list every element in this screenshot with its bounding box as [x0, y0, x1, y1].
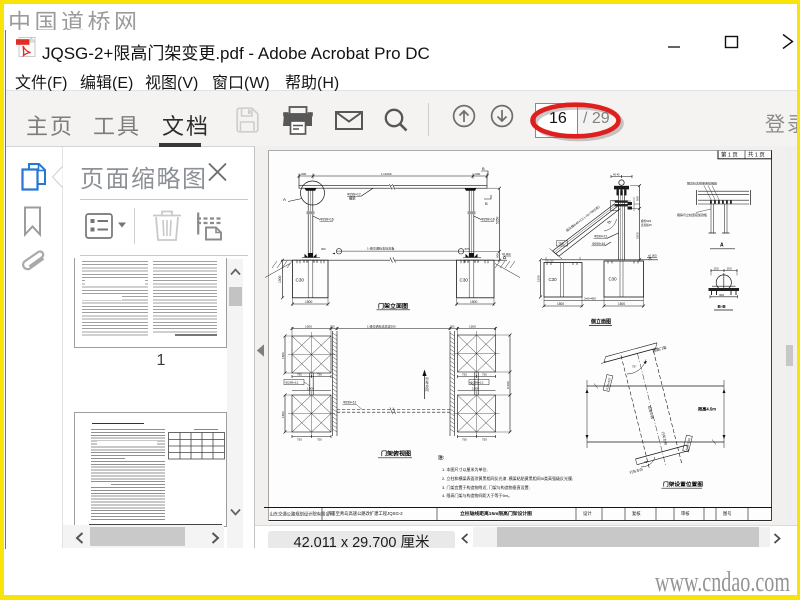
svg-text:300: 300	[719, 293, 724, 297]
svg-text:济南至青岛高速公路改扩建工程JQSG-2: 济南至青岛高速公路改扩建工程JQSG-2	[327, 510, 403, 517]
svg-text:www.cndao.com: www.cndao.com	[655, 566, 790, 598]
svg-text:750: 750	[558, 242, 564, 246]
svg-text:限高标志横梁连接抱箍: 限高标志横梁连接抱箍	[687, 181, 717, 186]
svg-text:1. 本图尺寸以厘米为单位;: 1. 本图尺寸以厘米为单位;	[442, 466, 488, 472]
svg-text:1500: 1500	[278, 275, 282, 283]
svg-text:2. 立柱和横梁表面涂黄黑相间反光漆, 横梁粘贴黄黑相间II: 2. 立柱和横梁表面涂黄黑相间反光漆, 横梁粘贴黄黑相间III类高强级反光膜;	[442, 475, 573, 481]
svg-text:限高4.5m: 限高4.5m	[698, 406, 716, 413]
svg-text:行车方向: 行车方向	[661, 431, 669, 446]
svg-text:复核: 复核	[632, 510, 641, 517]
svg-text:75°: 75°	[632, 365, 637, 369]
svg-text:1500: 1500	[307, 387, 314, 391]
svg-text:3. 门架宜置于构造物附近, 门架与构造物垂直设置;: 3. 门架宜置于构造物附近, 门架与构造物垂直设置;	[442, 484, 530, 490]
svg-text:C30: C30	[460, 278, 469, 283]
svg-text:±0.000: ±0.000	[502, 252, 511, 256]
svg-text:A: A	[720, 243, 724, 249]
svg-text:连接板25: 连接板25	[641, 223, 652, 227]
svg-text:Φ75: Φ75	[465, 247, 471, 251]
svg-text:C30: C30	[549, 277, 558, 282]
svg-text:1500: 1500	[470, 300, 478, 304]
svg-text:行车方向: 行车方向	[424, 376, 429, 392]
svg-text:1500: 1500	[557, 302, 564, 306]
svg-text:45°: 45°	[607, 221, 613, 225]
svg-text:Φ299×16: Φ299×16	[320, 218, 334, 222]
svg-text:750: 750	[482, 437, 487, 441]
svg-text:Φ299×16: Φ299×16	[481, 218, 495, 222]
svg-text:150: 150	[714, 267, 719, 271]
svg-text:750: 750	[462, 437, 467, 441]
svg-text:750: 750	[462, 373, 467, 377]
svg-text:图号: 图号	[723, 511, 732, 517]
svg-text:750: 750	[482, 373, 487, 377]
svg-text:3×6=450: 3×6=450	[584, 297, 596, 301]
svg-text:5250: 5250	[635, 232, 639, 239]
svg-text:Φ299×12: Φ299×12	[286, 381, 299, 385]
svg-text:300: 300	[330, 324, 335, 328]
svg-text:Φ299×16: Φ299×16	[592, 242, 605, 246]
svg-text:抱箍与立柱连接加劲板: 抱箍与立柱连接加劲板	[677, 212, 707, 217]
svg-text:C30: C30	[609, 277, 618, 282]
svg-text:300: 300	[301, 172, 306, 176]
svg-text:1500: 1500	[305, 324, 312, 328]
svg-text:设计: 设计	[583, 510, 592, 517]
svg-text:1500: 1500	[472, 387, 479, 391]
svg-text:侧立面图: 侧立面图	[591, 318, 612, 326]
svg-text:4. 限高门架与构造物间距大于等于5m。: 4. 限高门架与构造物间距大于等于5m。	[442, 492, 512, 498]
svg-text:1-级交通标志总宽950: 1-级交通标志总宽950	[367, 323, 396, 328]
svg-text:C30: C30	[296, 278, 305, 283]
svg-text:B-B: B-B	[718, 304, 727, 309]
svg-text:匝道中线: 匝道中线	[647, 405, 655, 420]
svg-text:1500: 1500	[618, 302, 625, 306]
svg-text:600: 600	[495, 253, 499, 258]
svg-text:300: 300	[475, 172, 480, 176]
svg-text:行车方向: 行车方向	[629, 466, 644, 475]
svg-text:750: 750	[297, 373, 302, 377]
svg-text:Φ299×12: Φ299×12	[471, 381, 484, 385]
svg-text:5250: 5250	[495, 216, 499, 224]
svg-text:门架设置位置图: 门架设置位置图	[663, 480, 703, 488]
svg-text:150: 150	[727, 267, 732, 271]
svg-text:750: 750	[317, 437, 322, 441]
svg-text:300: 300	[321, 247, 326, 251]
svg-text:8-600: 8-600	[506, 381, 510, 389]
svg-text:300: 300	[450, 324, 455, 328]
svg-text:螺栓M22: 螺栓M22	[641, 219, 652, 223]
svg-text:1500: 1500	[281, 352, 285, 359]
svg-text:门架俯视图: 门架俯视图	[381, 450, 411, 458]
svg-text:限高门架: 限高门架	[652, 345, 668, 354]
svg-text:750,750: 750,750	[545, 261, 554, 263]
svg-text:门架立面图: 门架立面图	[378, 302, 408, 310]
svg-text:L=4200: L=4200	[381, 172, 392, 176]
svg-text:共 1 页: 共 1 页	[748, 150, 765, 158]
svg-text:A: A	[283, 197, 286, 202]
svg-text:1500: 1500	[305, 300, 313, 304]
svg-text:1500: 1500	[281, 411, 285, 418]
svg-text:注:: 注:	[438, 454, 445, 461]
svg-text:±0.000: ±0.000	[648, 253, 657, 257]
svg-text:40 40: 40 40	[613, 172, 620, 176]
svg-text:山东交通公路规划设计院有限公司: 山东交通公路规划设计院有限公司	[270, 511, 334, 518]
svg-text:750: 750	[297, 437, 302, 441]
svg-text:75°: 75°	[644, 460, 649, 464]
svg-text:750: 750	[317, 373, 322, 377]
svg-text:第 1 页: 第 1 页	[721, 150, 738, 158]
svg-text:立柱轴线距离15m限高门架设计图: 立柱轴线距离15m限高门架设计图	[460, 510, 532, 517]
svg-text:1500: 1500	[469, 324, 476, 328]
svg-text:Φ299×12: Φ299×12	[343, 401, 356, 405]
svg-text:1500: 1500	[536, 275, 540, 282]
svg-text:1-级交通标志标志板: 1-级交通标志标志板	[367, 245, 395, 250]
svg-text:Φ299×12: Φ299×12	[594, 235, 607, 239]
svg-text:960: 960	[635, 196, 639, 201]
svg-text:B: B	[482, 166, 485, 171]
svg-text:审核: 审核	[681, 510, 690, 517]
svg-text:B: B	[485, 201, 488, 206]
